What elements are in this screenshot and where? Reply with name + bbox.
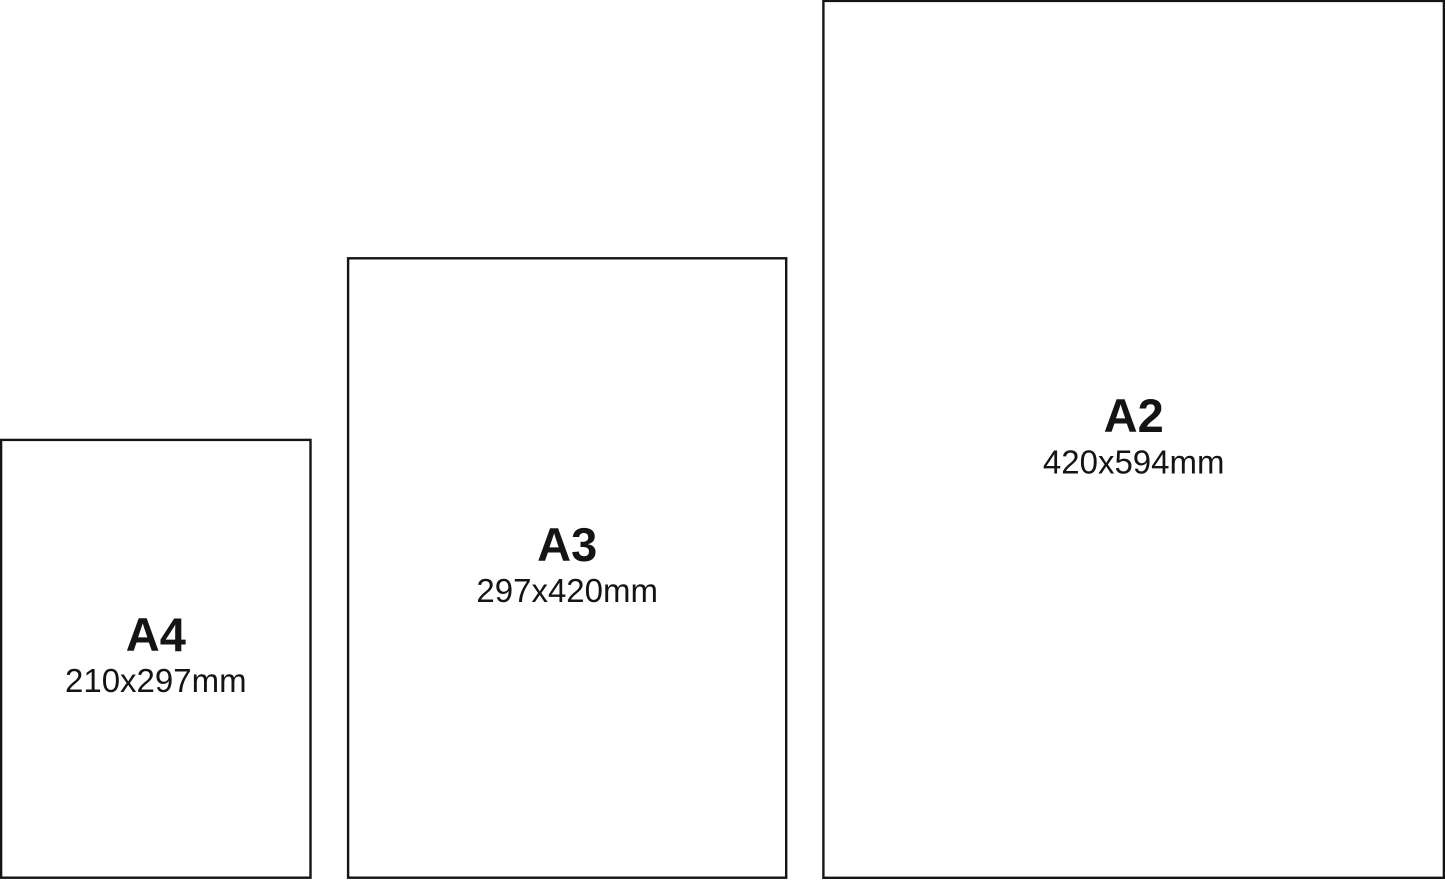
svg-text:A3: A3 [537, 518, 597, 571]
svg-text:210x297mm: 210x297mm [65, 662, 247, 699]
svg-text:A2: A2 [1104, 389, 1164, 442]
svg-text:A4: A4 [126, 608, 186, 661]
svg-text:297x420mm: 297x420mm [476, 572, 658, 609]
svg-text:420x594mm: 420x594mm [1043, 444, 1225, 481]
